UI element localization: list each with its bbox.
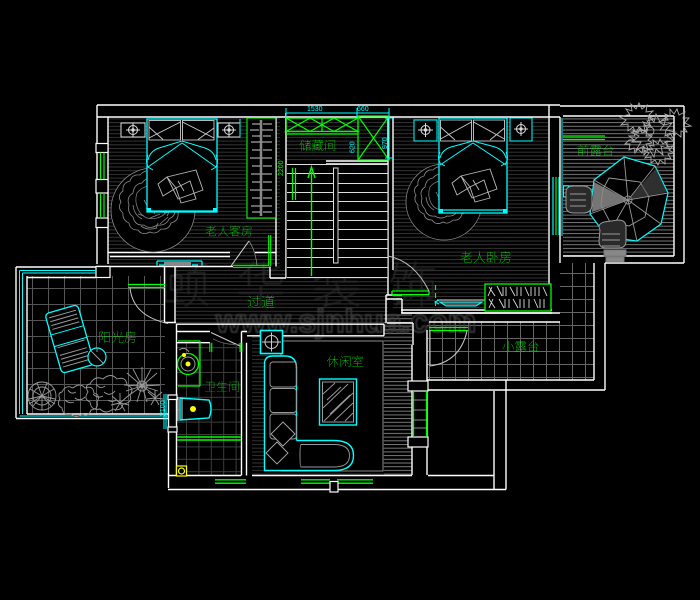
- svg-text:970: 970: [382, 137, 389, 149]
- svg-text:2200: 2200: [278, 160, 285, 176]
- svg-text:2100: 2100: [160, 400, 167, 416]
- svg-text:660: 660: [357, 106, 369, 113]
- svg-text:www.sjnhua.com: www.sjnhua.com: [215, 303, 476, 339]
- svg-text:1530: 1530: [307, 106, 323, 113]
- svg-text:620: 620: [350, 141, 357, 153]
